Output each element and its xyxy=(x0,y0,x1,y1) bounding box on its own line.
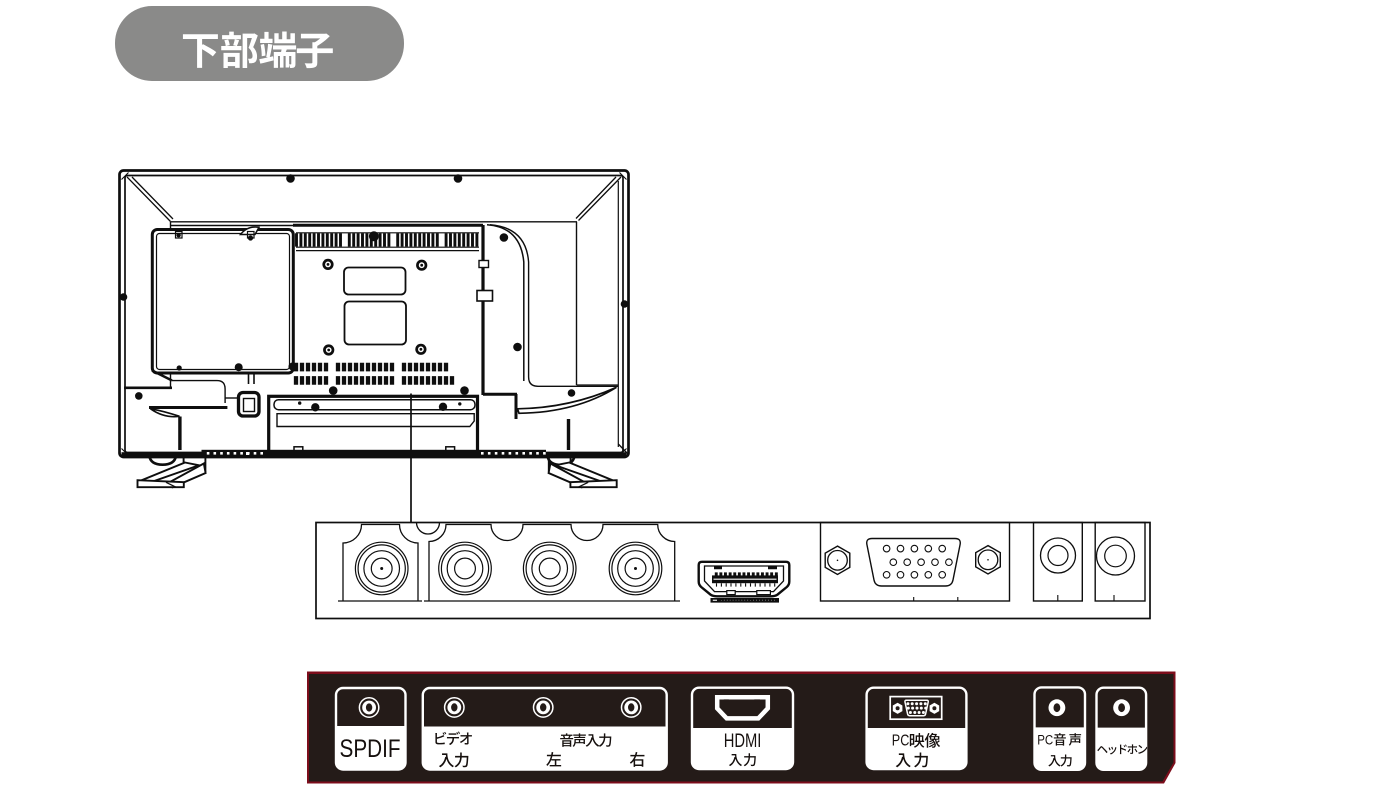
svg-text:HDMI: HDMI xyxy=(724,730,762,752)
svg-text:PC: PC xyxy=(892,733,910,750)
svg-text:SPDIF: SPDIF xyxy=(340,735,401,763)
svg-text:PC: PC xyxy=(1037,732,1053,748)
